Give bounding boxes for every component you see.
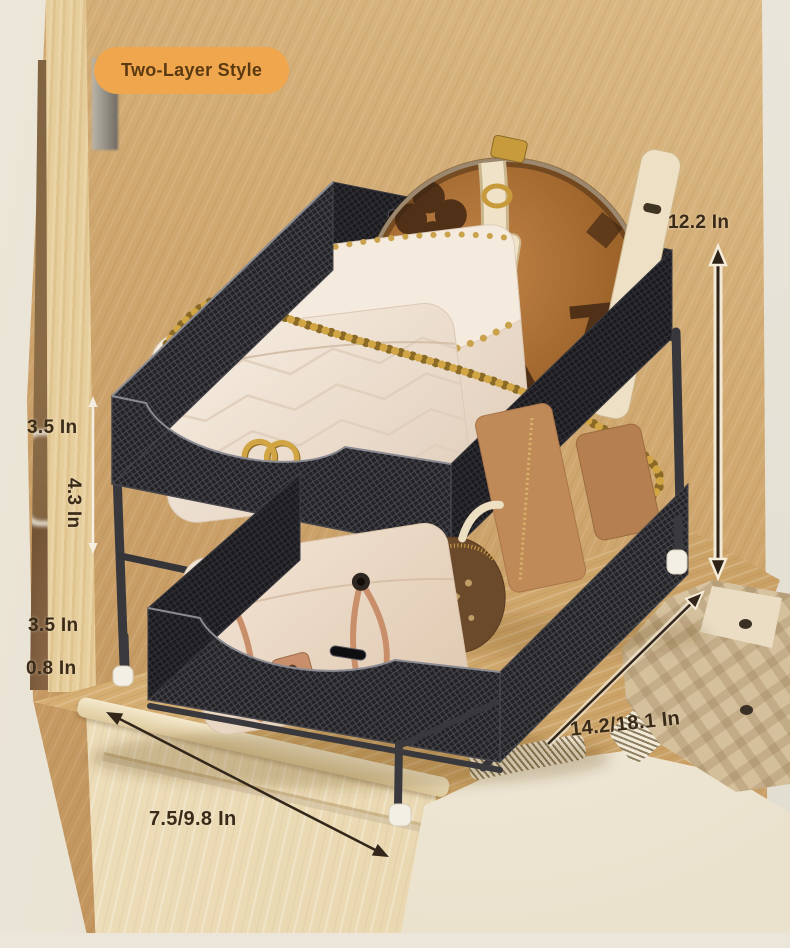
- dim-upper-tier-label: 3.5 In: [27, 417, 77, 439]
- dim-overall-height-label: 12.2 In: [668, 212, 729, 234]
- arrow-overall-height: [710, 246, 726, 578]
- style-badge: Two-Layer Style: [94, 47, 289, 94]
- dim-depth-label: 7.5/9.8 In: [149, 808, 237, 831]
- rack-illustration: V L: [0, 0, 790, 948]
- product-photo: V L: [0, 0, 790, 948]
- dim-base-clearance-label: 0.8 In: [26, 658, 76, 680]
- dim-lower-tier-label: 3.5 In: [28, 615, 78, 637]
- arrow-tier-gap: [89, 396, 98, 554]
- badge-label: Two-Layer Style: [121, 60, 262, 80]
- dim-tier-gap-label: 4.3 In: [62, 478, 84, 528]
